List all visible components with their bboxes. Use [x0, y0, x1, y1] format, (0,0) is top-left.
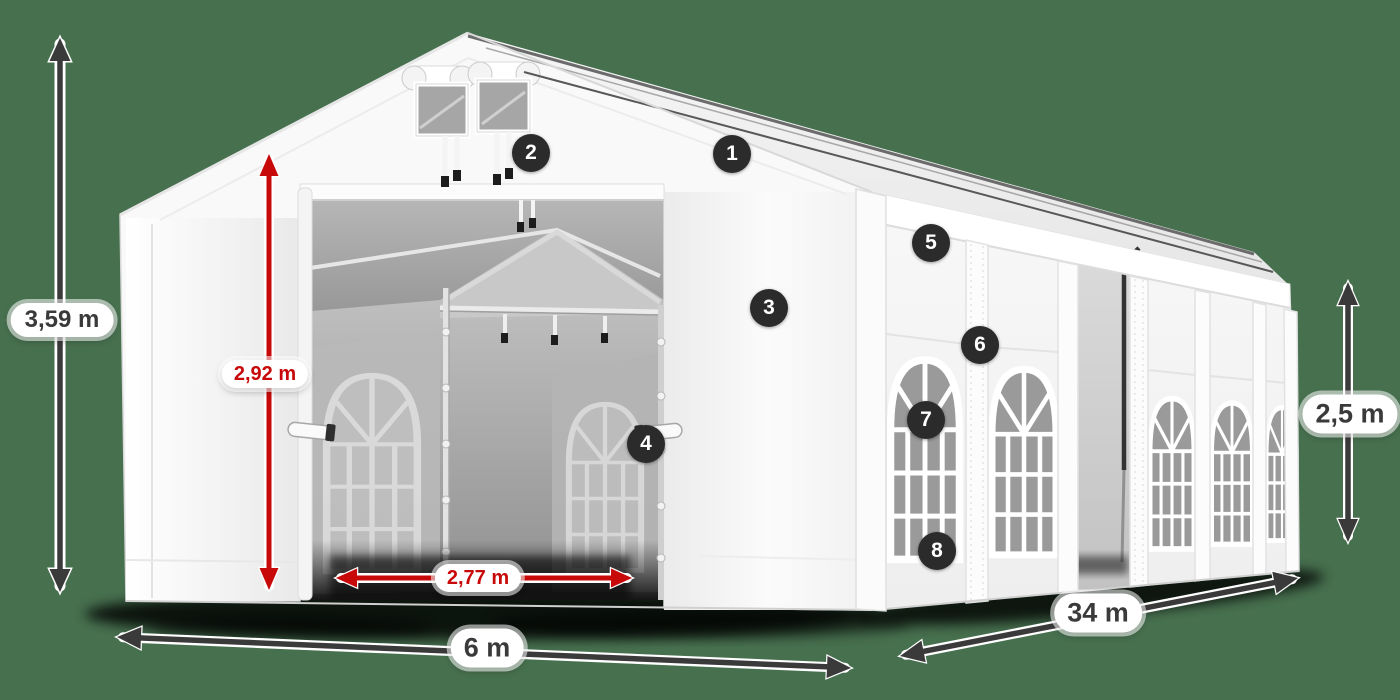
front-right-panel	[664, 192, 872, 610]
dimension-value: 6 m	[464, 635, 511, 662]
dimension-value: 2,77 m	[447, 568, 509, 588]
marker-badge-1: 1	[713, 135, 751, 173]
side-window	[1150, 399, 1194, 549]
dimension-value: 3,59 m	[25, 308, 100, 332]
side-window	[891, 360, 960, 559]
dimension-value: 2,5 m	[1315, 401, 1384, 428]
left-door-jamb	[298, 188, 312, 600]
marker-badge-7: 7	[907, 401, 945, 439]
dimension-label-side-length: 34 m	[1054, 594, 1142, 633]
marker-badge-5: 5	[912, 224, 950, 262]
dimension-label-front-width: 6 m	[451, 629, 524, 668]
dimension-label-total-height: 3,59 m	[11, 303, 114, 337]
tent-diagram: 3,59 m 2,92 m 2,77 m 6 m 34 m 2,5 m 1 2 …	[0, 0, 1400, 700]
corner-post	[856, 189, 886, 611]
side-window	[992, 369, 1056, 555]
dimension-value: 34 m	[1067, 600, 1129, 627]
entrance-header-beam	[300, 184, 664, 200]
marker-badge-4: 4	[627, 425, 665, 463]
marker-badge-6: 6	[961, 326, 999, 364]
dimension-label-side-height: 2,5 m	[1302, 395, 1397, 434]
side-window	[1212, 403, 1252, 544]
tent-illustration	[0, 0, 1400, 700]
marker-badge-2: 2	[512, 134, 550, 172]
dimension-label-entrance-height: 2,92 m	[222, 360, 308, 388]
marker-badge-8: 8	[918, 532, 956, 570]
dimension-label-entrance-width: 2,77 m	[435, 564, 521, 592]
dimension-value: 2,92 m	[234, 364, 296, 384]
marker-badge-3: 3	[750, 289, 788, 327]
tent-entrance-interior	[300, 190, 664, 600]
